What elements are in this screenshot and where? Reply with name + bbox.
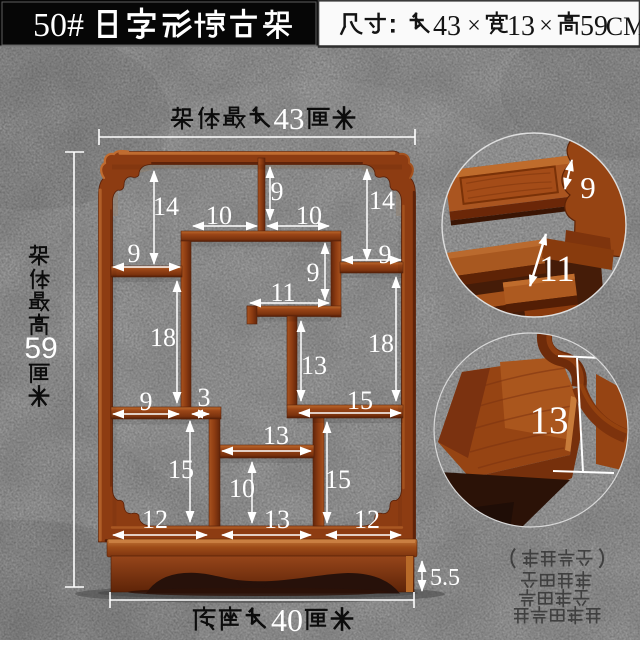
svg-text:13: 13 <box>263 421 289 450</box>
svg-text:11: 11 <box>270 278 295 307</box>
svg-text:9: 9 <box>271 177 284 206</box>
svg-text:10: 10 <box>229 474 255 503</box>
svg-text:15: 15 <box>168 455 194 484</box>
svg-text:10: 10 <box>206 201 232 230</box>
svg-text:18: 18 <box>368 329 394 358</box>
svg-text:13: 13 <box>264 505 290 534</box>
svg-text:5.5: 5.5 <box>430 565 460 591</box>
svg-text:×: × <box>467 13 481 39</box>
svg-text:13: 13 <box>507 11 535 42</box>
svg-text:9: 9 <box>140 387 153 416</box>
svg-text:10: 10 <box>296 201 322 230</box>
svg-text:9: 9 <box>307 258 320 287</box>
svg-text:12: 12 <box>142 505 168 534</box>
svg-text:14: 14 <box>369 186 395 215</box>
svg-text:59: 59 <box>24 332 57 365</box>
svg-text:9: 9 <box>580 170 596 205</box>
svg-text:59: 59 <box>580 11 608 42</box>
svg-text:13: 13 <box>301 351 327 380</box>
svg-text:×: × <box>539 13 553 39</box>
svg-text:13: 13 <box>530 399 569 442</box>
svg-text:15: 15 <box>347 386 373 415</box>
svg-text:3: 3 <box>198 383 211 412</box>
svg-text:50#: 50# <box>33 7 84 44</box>
svg-text:43: 43 <box>274 101 305 136</box>
svg-text:12: 12 <box>354 505 380 534</box>
svg-text:11: 11 <box>539 249 575 290</box>
svg-text:18: 18 <box>150 323 176 352</box>
svg-text:9: 9 <box>128 239 141 268</box>
svg-text:15: 15 <box>325 465 351 494</box>
svg-text:43: 43 <box>433 11 461 42</box>
svg-text:14: 14 <box>153 192 179 221</box>
svg-text:CM: CM <box>606 12 640 41</box>
svg-text:40: 40 <box>271 602 303 638</box>
svg-text:9: 9 <box>379 240 392 269</box>
